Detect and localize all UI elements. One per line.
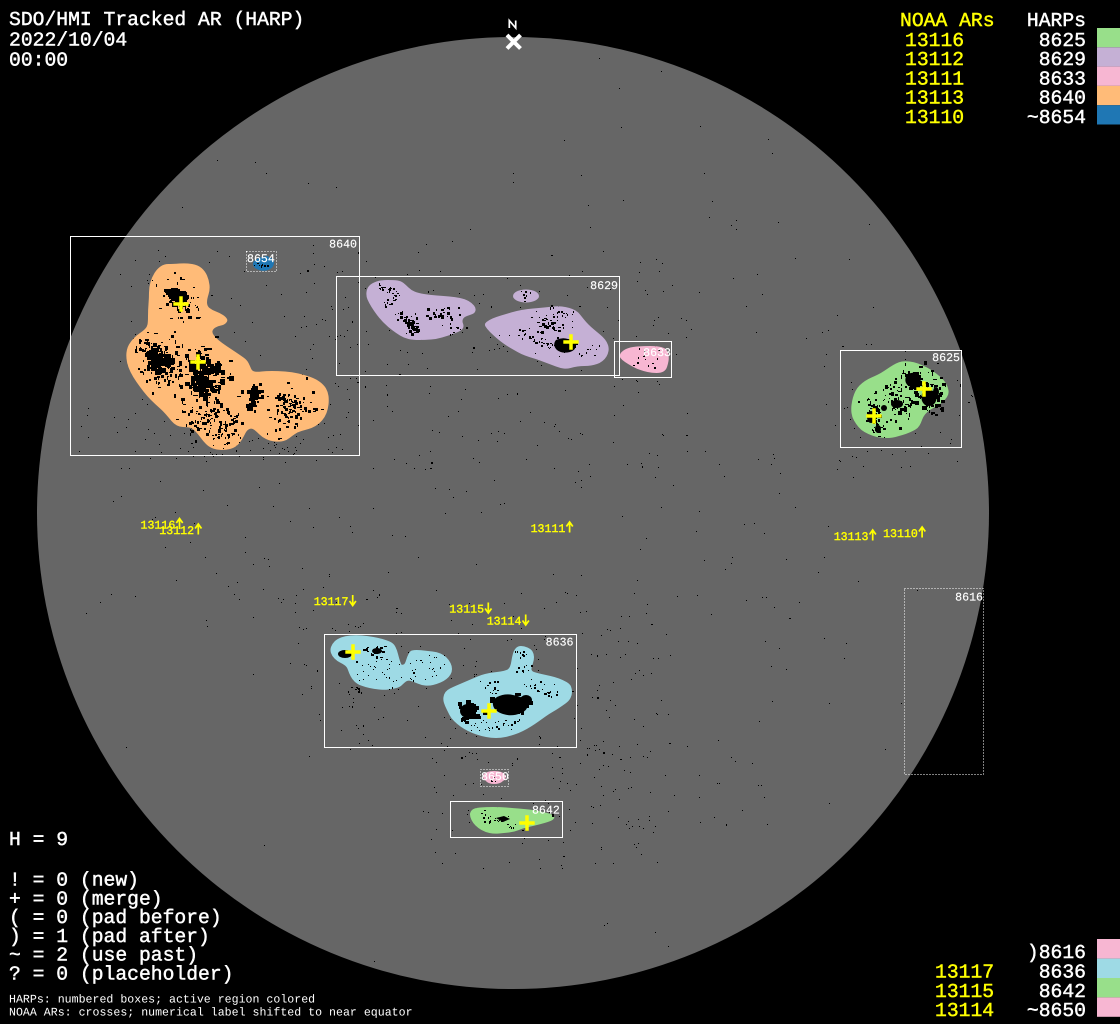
svg-text:? = 0 (placeholder): ? = 0 (placeholder) [9,964,233,986]
svg-text:H = 9: H = 9 [9,829,68,851]
svg-text:8616: 8616 [955,592,983,605]
svg-text:13110: 13110 [905,107,964,129]
svg-text:13113: 13113 [834,531,869,544]
svg-text:~8654: ~8654 [1027,107,1086,129]
svg-text:NOAA ARs: NOAA ARs [900,10,995,32]
svg-text:NOAA ARs: crosses; numerical l: NOAA ARs: crosses; numerical label shift… [9,1006,413,1019]
svg-text:HARPs: HARPs [1027,10,1086,32]
svg-text:8625: 8625 [932,352,960,365]
svg-text:8650: 8650 [481,771,509,784]
svg-text:13114: 13114 [487,616,522,629]
svg-text:13111: 13111 [531,523,566,536]
svg-text:HARPs: numbered boxes; active: HARPs: numbered boxes; active region col… [9,994,315,1007]
svg-text:13110: 13110 [883,528,918,541]
svg-text:13112: 13112 [159,525,194,538]
svg-text:2022/10/04: 2022/10/04 [9,29,127,51]
svg-text:8636: 8636 [546,637,574,650]
svg-text:13114: 13114 [935,1000,994,1022]
svg-text:SDO/HMI Tracked AR (HARP): SDO/HMI Tracked AR (HARP) [9,9,304,31]
svg-text:00:00: 00:00 [9,50,68,72]
svg-text:13117: 13117 [314,596,349,609]
svg-text:8640: 8640 [329,239,357,252]
svg-text:8629: 8629 [590,280,618,293]
svg-text:13115: 13115 [449,604,484,617]
svg-text:8642: 8642 [532,805,560,818]
svg-text:8633: 8633 [643,347,671,360]
svg-text:8654: 8654 [247,253,275,266]
svg-text:~8650: ~8650 [1027,1000,1086,1022]
